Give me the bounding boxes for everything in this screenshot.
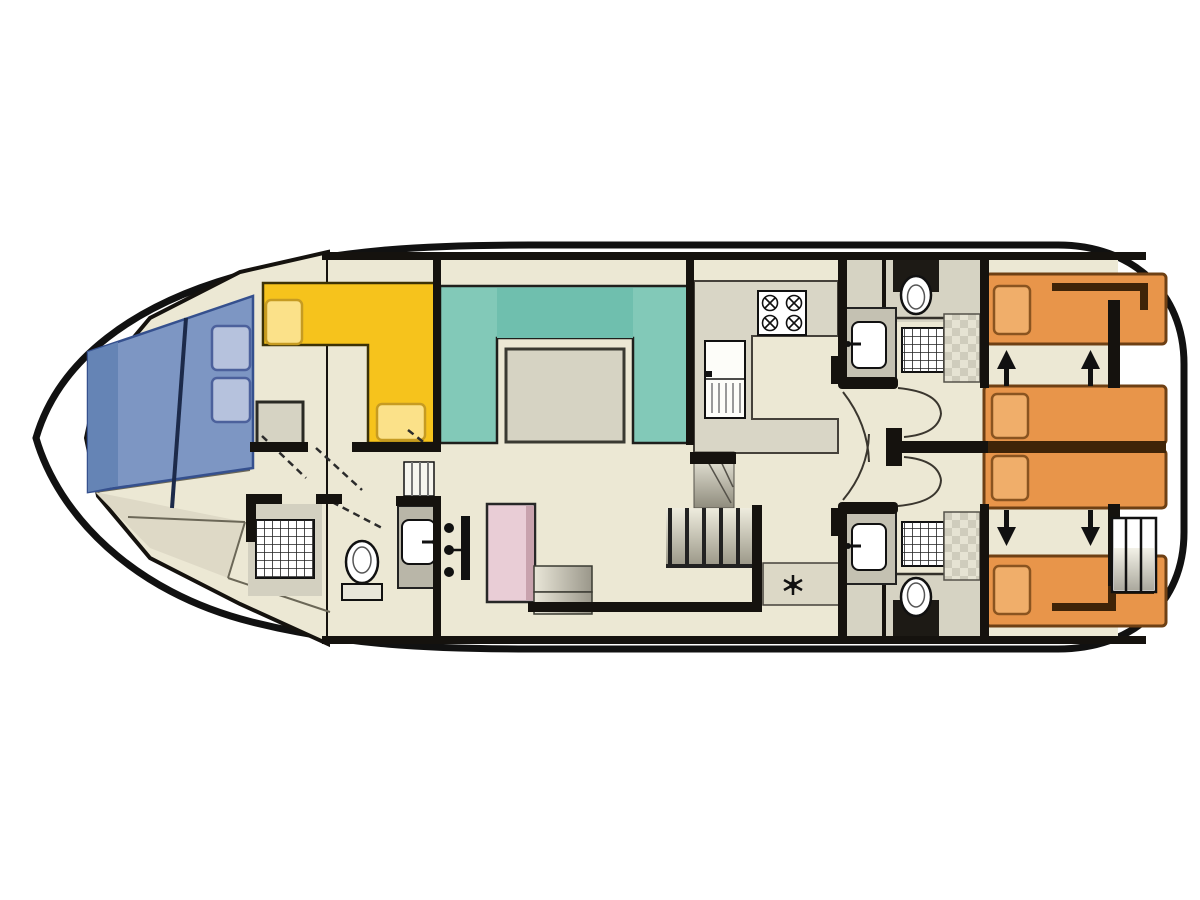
bed-pillow xyxy=(992,456,1028,500)
wall-center xyxy=(896,441,988,453)
fridge-icon xyxy=(705,341,745,418)
wardrobe-side xyxy=(526,506,534,600)
houseboat-floor-plan xyxy=(0,0,1200,900)
louver-step xyxy=(404,462,434,496)
wall-top xyxy=(322,252,1146,260)
wall-front-bath-top xyxy=(396,496,441,506)
wall-front-cabin-right xyxy=(433,504,441,644)
tile-checker xyxy=(944,512,980,580)
wall-cabin-divider xyxy=(980,504,989,636)
shower-icon xyxy=(902,522,944,566)
wall-front-cabin-bottom xyxy=(250,442,308,452)
tile-checker xyxy=(944,314,980,382)
bed-pillow xyxy=(994,286,1030,334)
wall-bath-bottom-left xyxy=(838,512,847,636)
toilet-icon xyxy=(901,578,931,616)
stove-icon xyxy=(758,291,806,335)
wall-front-bath-top xyxy=(316,494,342,504)
wall-galley-stub xyxy=(690,452,736,464)
wall-front-cabin-right xyxy=(433,252,441,448)
washbasin-icon xyxy=(845,508,896,584)
wall-bath-nook-top xyxy=(838,377,898,389)
toilet-icon xyxy=(901,276,931,314)
wall-under xyxy=(528,602,762,612)
wall-cabin-divider xyxy=(980,252,989,388)
saloon-sofa-back xyxy=(497,288,633,338)
stern-ladder xyxy=(1112,518,1156,592)
wall-bottom xyxy=(322,636,1146,644)
wardrobe xyxy=(487,504,535,602)
wall-front-cabin-bottom xyxy=(352,442,441,452)
toilet-icon xyxy=(342,541,382,600)
wall-saloon-right xyxy=(686,252,694,445)
dinette-cushion xyxy=(377,404,425,440)
saloon-table xyxy=(506,349,624,442)
floor-plan-canvas xyxy=(0,0,1200,900)
aft-bathroom-top xyxy=(845,256,980,384)
saloon xyxy=(440,286,688,443)
dinette-cushion xyxy=(266,300,302,344)
shower-icon xyxy=(902,328,944,372)
wall-center-trim xyxy=(988,441,1166,453)
wall-stern xyxy=(1108,300,1120,388)
shower-icon xyxy=(256,520,314,578)
berth-pillow xyxy=(212,326,250,370)
berth-pillow xyxy=(212,378,250,422)
washbasin-icon xyxy=(845,308,896,384)
washbasin-icon xyxy=(398,506,438,588)
wall-front-bath-left xyxy=(246,494,256,542)
aft-corridor xyxy=(763,563,848,605)
bed-pillow xyxy=(994,566,1030,614)
v-berth-edge xyxy=(88,342,118,492)
wall-door-stub xyxy=(886,428,902,466)
bed-pillow xyxy=(992,394,1028,438)
corridor-mat xyxy=(763,563,848,605)
wall-stairs xyxy=(752,505,762,608)
stair-well xyxy=(666,508,756,564)
